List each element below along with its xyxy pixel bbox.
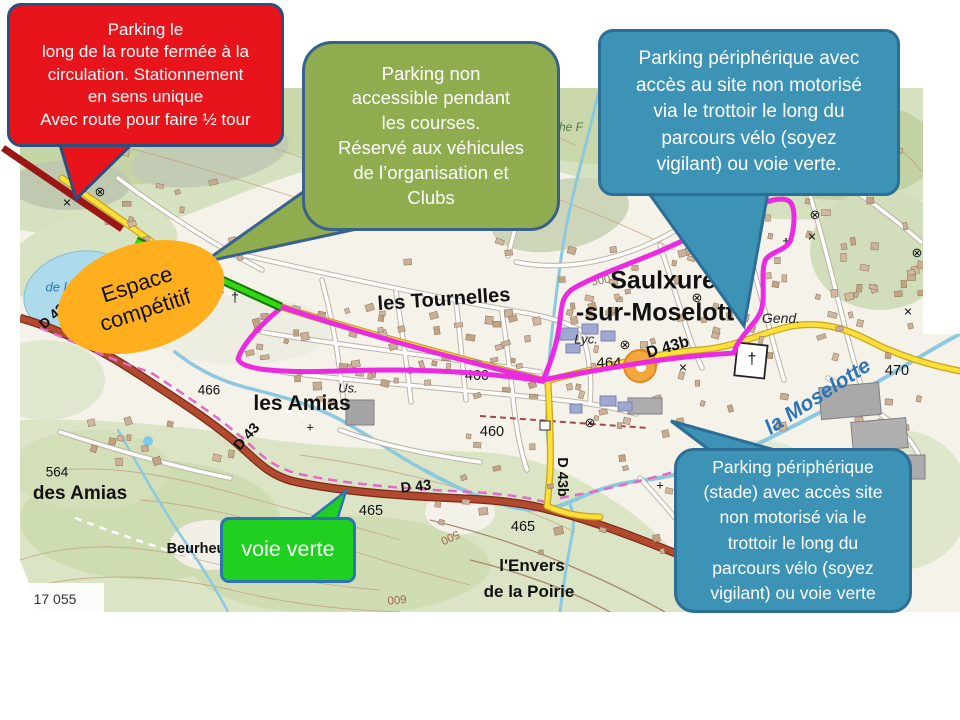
label-voie-verte: voie verte: [220, 517, 356, 583]
callout-parking-peripherique-nord: Parking périphérique avec accès au site …: [598, 29, 900, 196]
callout-parking-route-fermee: Parking le long de la route fermée à la …: [7, 3, 284, 147]
callout-tail-blue-top: [648, 192, 768, 326]
callout-parking-non-accessible: Parking non accessible pendant les cours…: [302, 41, 560, 231]
callout-parking-peripherique-stade: Parking périphérique (stade) avec accès …: [674, 448, 912, 613]
slide: les TournellesSaulxures-sur-Moselotteles…: [0, 0, 960, 720]
